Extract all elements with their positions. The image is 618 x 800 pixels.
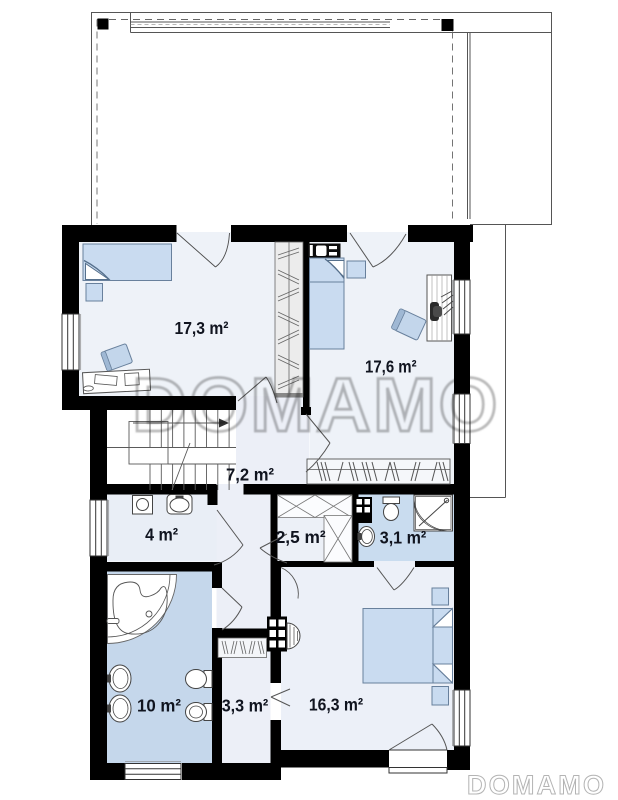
svg-text:16,3 m²: 16,3 m²: [309, 695, 363, 715]
svg-text:4 m²: 4 m²: [145, 525, 178, 545]
svg-text:10 m²: 10 m²: [137, 696, 181, 716]
svg-text:3,1 m²: 3,1 m²: [380, 528, 427, 548]
svg-text:17,3 m²: 17,3 m²: [175, 318, 229, 338]
svg-text:3,3 m²: 3,3 m²: [222, 696, 269, 716]
svg-text:2,5 m²: 2,5 m²: [276, 527, 326, 547]
svg-text:DOMAMO: DOMAMO: [132, 363, 500, 448]
svg-text:7,2 m²: 7,2 m²: [226, 465, 274, 485]
svg-text:DOMAMO: DOMAMO: [467, 770, 606, 800]
